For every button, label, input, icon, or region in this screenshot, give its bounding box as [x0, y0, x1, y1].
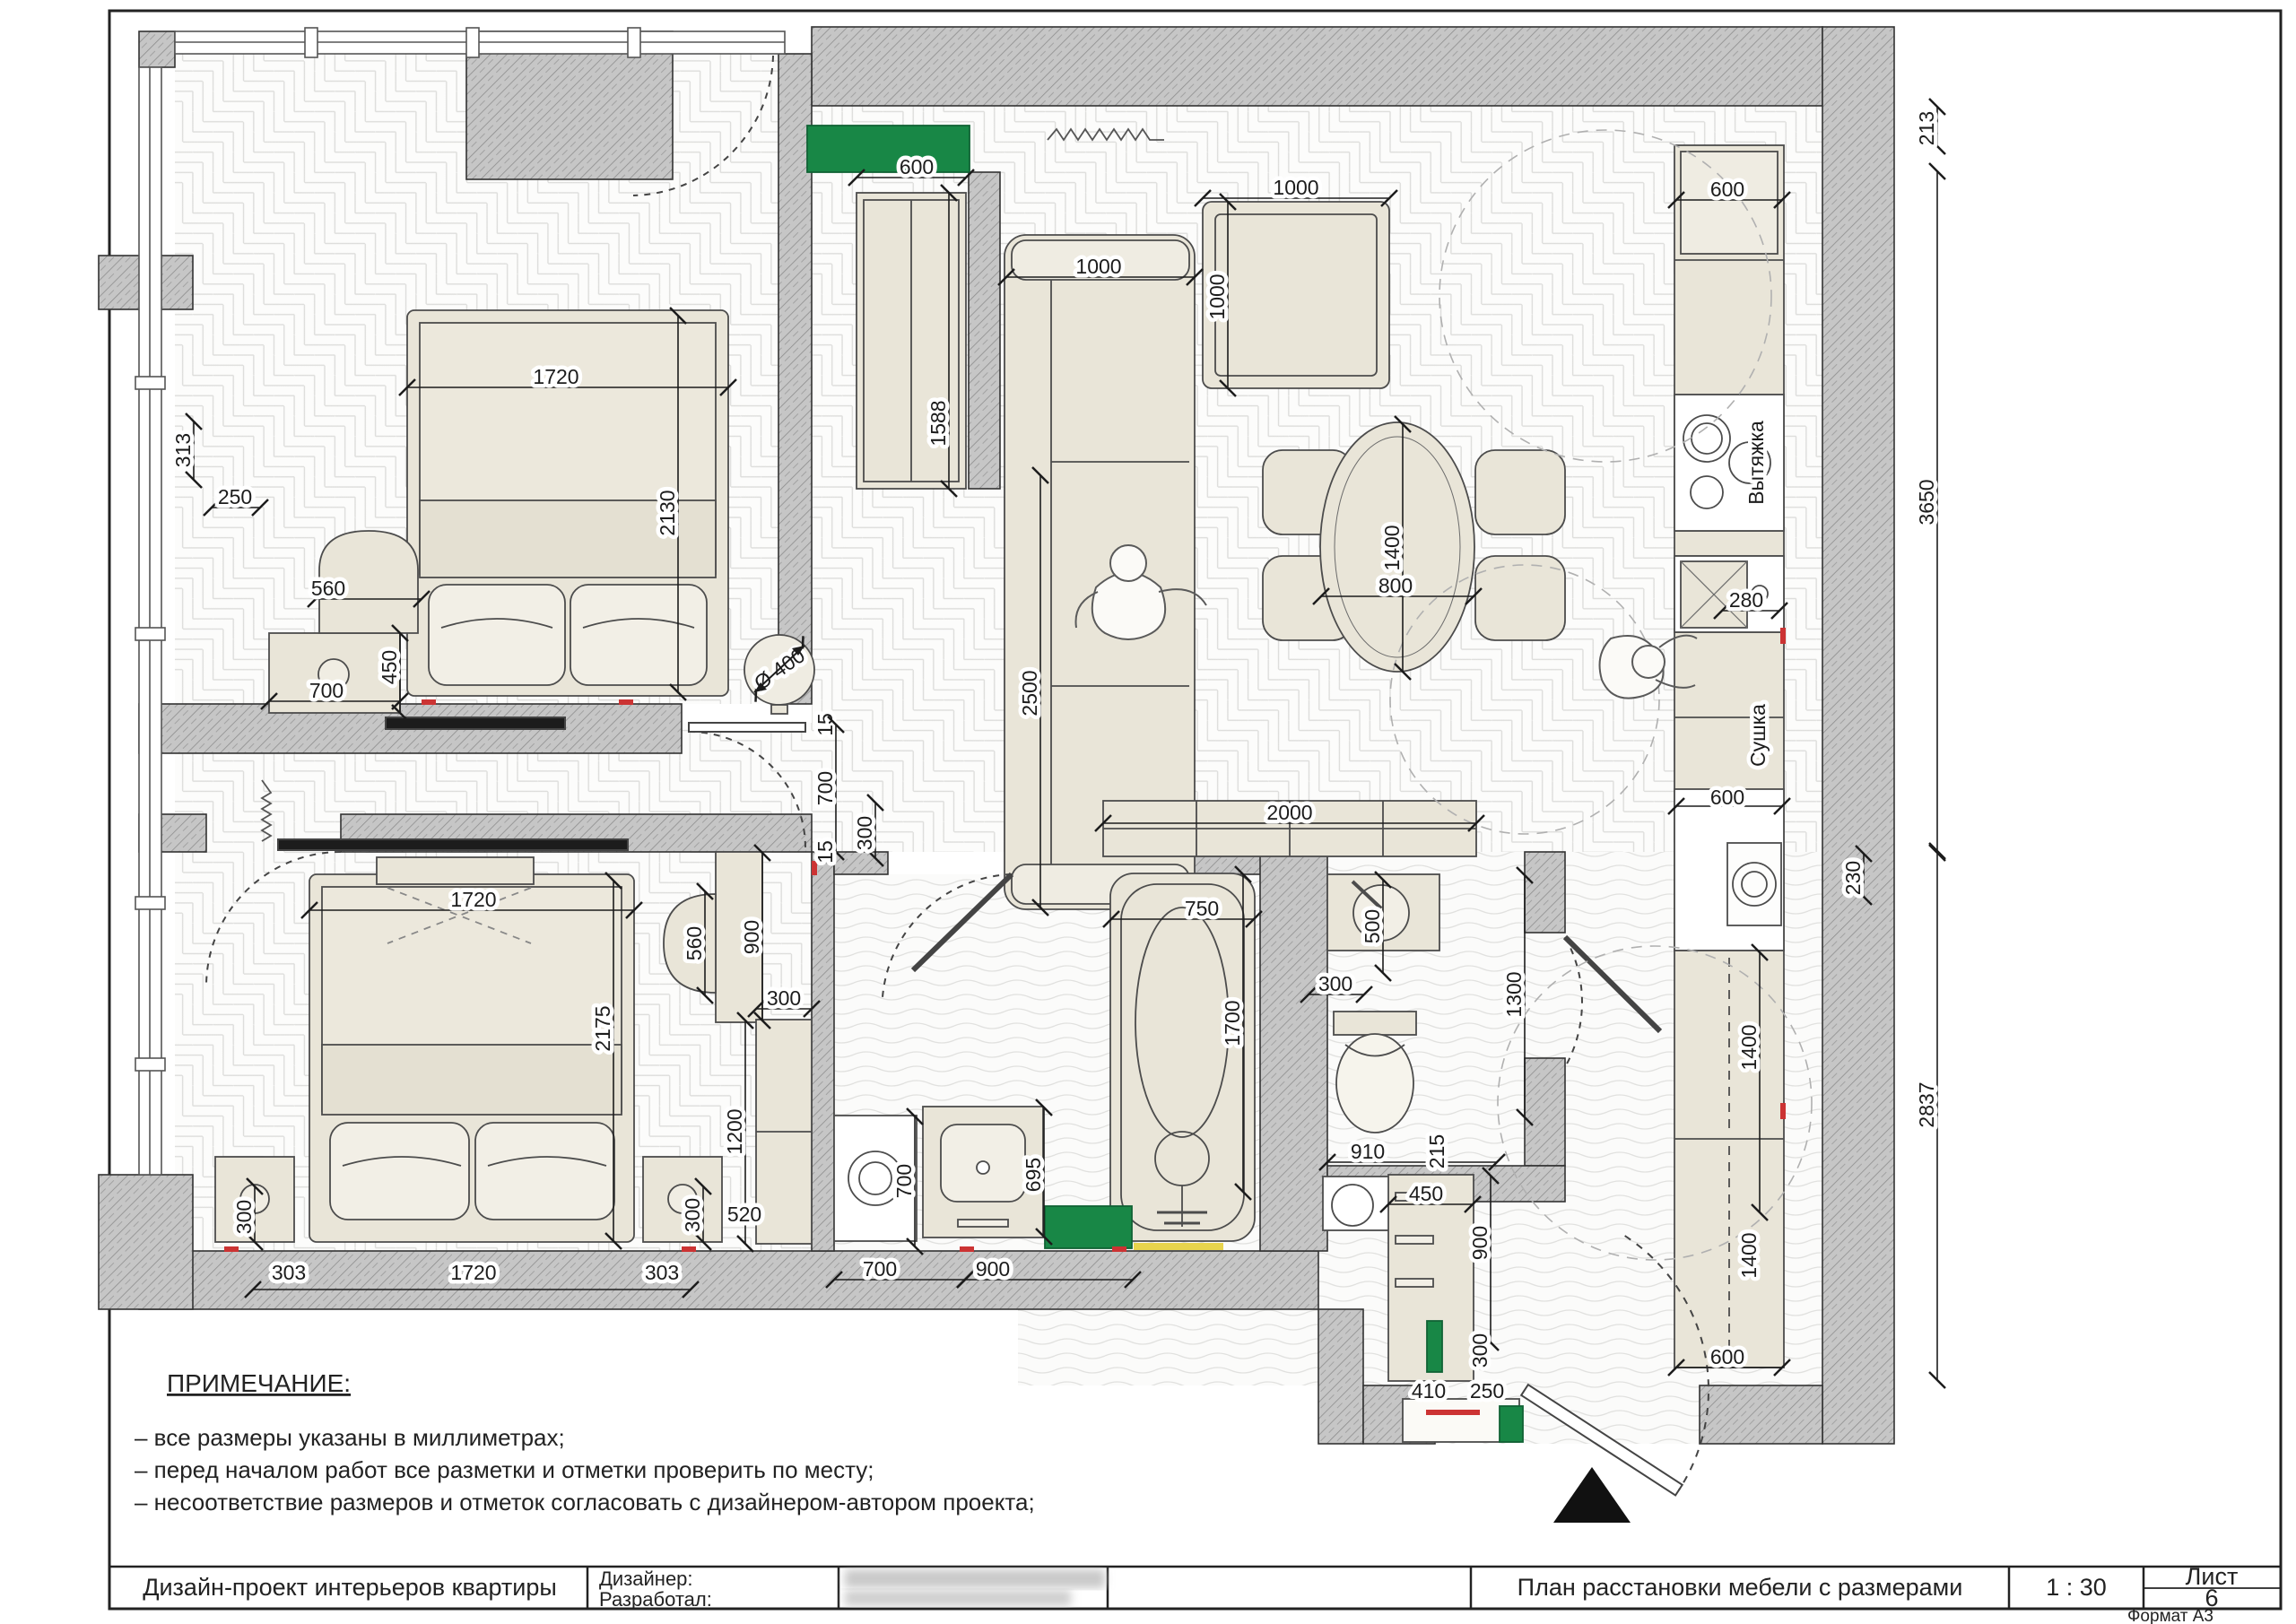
dim-label: 520 [727, 1203, 761, 1226]
dim-label: 1720 [533, 365, 578, 388]
hall-niche-unit [1323, 1177, 1396, 1230]
dim-label: 3650 [1915, 479, 1938, 525]
dim-label: 1720 [450, 888, 496, 911]
dim-label: 1400 [1737, 1024, 1761, 1070]
dim-label: 15 [813, 840, 837, 864]
threshold-yellow [1134, 1243, 1223, 1250]
wall-bottom [139, 1251, 1318, 1309]
note-item: – перед началом работ все разметки и отм… [135, 1456, 874, 1483]
wall-top [812, 27, 1822, 106]
developed-label: Разработал: [599, 1588, 712, 1611]
wall-corner-bottom-left [99, 1175, 193, 1309]
dim-label: 215 [1425, 1134, 1448, 1168]
redacted-name [845, 1590, 1071, 1606]
dim-label: 15 [813, 713, 837, 736]
dim-label: Сушка [1746, 704, 1770, 767]
dim-label: 600 [900, 155, 934, 178]
dim-label: 300 [681, 1198, 704, 1232]
dim-label: 1700 [1221, 1000, 1244, 1046]
entry-green-strip [1500, 1406, 1523, 1442]
wall-wc-right-b [1525, 1058, 1565, 1166]
pillow [429, 585, 565, 685]
dim-label: 1000 [1273, 176, 1318, 199]
toilet-tank [1334, 1012, 1416, 1035]
dim-label: 560 [311, 577, 345, 600]
dim-label: 700 [309, 679, 344, 702]
dim-label: 450 [378, 650, 401, 684]
hall-closet [1674, 951, 1784, 1368]
dim-label: 300 [853, 816, 876, 850]
dim-label: 700 [892, 1164, 916, 1198]
toilet-bowl [1336, 1034, 1413, 1133]
scale-value: 1 : 30 [2046, 1574, 2107, 1601]
redacted-name [845, 1569, 1105, 1588]
wall-vestibule-left [1318, 1309, 1363, 1444]
designer-label: Дизайнер: [599, 1568, 693, 1590]
dim-label: 800 [1378, 574, 1413, 597]
dim-label: 700 [813, 771, 837, 805]
dim-label: 695 [1022, 1158, 1045, 1192]
dim-label: 1300 [1502, 971, 1526, 1017]
wall-bath-wc [1260, 852, 1327, 1251]
dim-label: 1720 [450, 1261, 496, 1284]
tv-console [377, 857, 534, 884]
dim-label: 1400 [1380, 525, 1404, 570]
dim-label: 500 [1361, 909, 1384, 943]
note-item: – все размеры указаны в миллиметрах; [135, 1424, 565, 1451]
dining-chair [1475, 556, 1565, 640]
dim-label: 600 [1710, 786, 1744, 809]
floor-plan-sheet: 17202130560450700313250Ø 400157001560015… [0, 0, 2296, 1624]
note-item: – несоответствие размеров и отметок согл… [135, 1489, 1035, 1515]
dim-label: 900 [740, 920, 763, 954]
dim-label: 250 [218, 485, 252, 508]
dim-label: 2000 [1266, 801, 1312, 824]
dim-label: 300 [1468, 1333, 1492, 1368]
dim-label: 2130 [656, 490, 679, 535]
format-label: Формат А3 [2127, 1607, 2213, 1624]
kitchen-cabinets [1674, 145, 1784, 951]
dim-label: 2175 [591, 1005, 614, 1051]
dim-label: 1000 [1075, 255, 1121, 278]
dim-label: 750 [1185, 897, 1219, 920]
notes-heading: ПРИМЕЧАНИЕ: [167, 1369, 351, 1397]
dim-label: 300 [767, 986, 801, 1010]
mirror-stand [771, 705, 787, 714]
dim-label: 410 [1412, 1379, 1446, 1403]
wardrobe-bedroom2 [756, 1020, 812, 1244]
drawing-title: План расстановки мебели с размерами [1518, 1574, 1963, 1601]
dim-label: 600 [1710, 1345, 1744, 1368]
pillow [475, 1123, 614, 1220]
dim-label: 560 [683, 926, 706, 960]
sliding-door-bedroom1 [386, 717, 565, 729]
shoe-cabinet [1388, 1175, 1474, 1381]
dim-label: 1200 [723, 1108, 746, 1154]
dim-label: 213 [1915, 111, 1938, 145]
wall-bath-left [812, 852, 834, 1251]
project-title: Дизайн-проект интерьеров квартиры [143, 1574, 557, 1601]
dim-label: 300 [232, 1200, 256, 1234]
wall-right [1822, 27, 1894, 1444]
dim-label: Вытяжка [1744, 421, 1768, 505]
coffee-table [1203, 202, 1389, 388]
dim-label: 280 [1729, 588, 1763, 612]
fridge [1681, 152, 1778, 254]
wall-vestibule-bottom-right [1700, 1385, 1822, 1444]
dim-label: 1588 [926, 400, 950, 446]
wall-wc-right-a [1525, 852, 1565, 933]
dim-label: 900 [976, 1257, 1010, 1281]
wall-corner-top-left [139, 31, 175, 67]
washing-machine-kitchen [1727, 843, 1781, 925]
bath-mat-green [1045, 1206, 1132, 1248]
sliding-door-bedroom2 [278, 839, 628, 850]
dim-label: 900 [1468, 1226, 1492, 1260]
dim-label: 303 [645, 1261, 679, 1284]
dim-label: 300 [1318, 972, 1352, 995]
pillow [570, 585, 707, 685]
wardrobe-green-top [807, 126, 970, 172]
dim-label: 700 [863, 1257, 897, 1281]
pillow [330, 1123, 469, 1220]
dim-label: 313 [171, 433, 195, 467]
dim-label: 1000 [1205, 274, 1229, 319]
dim-label: 910 [1351, 1140, 1385, 1163]
dim-label: 250 [1470, 1379, 1504, 1403]
dim-label: 230 [1841, 861, 1865, 895]
dining-chair [1475, 450, 1565, 534]
wall-living-west [969, 172, 1000, 489]
dim-label: 600 [1710, 178, 1744, 201]
dim-label: 303 [272, 1261, 306, 1284]
dim-label: 2500 [1018, 670, 1041, 716]
dim-label: 450 [1409, 1182, 1443, 1205]
dim-label: 1400 [1737, 1232, 1761, 1278]
bathtub [1110, 873, 1255, 1241]
bed-bedroom2 [309, 874, 634, 1242]
dim-label: 2837 [1915, 1081, 1938, 1127]
